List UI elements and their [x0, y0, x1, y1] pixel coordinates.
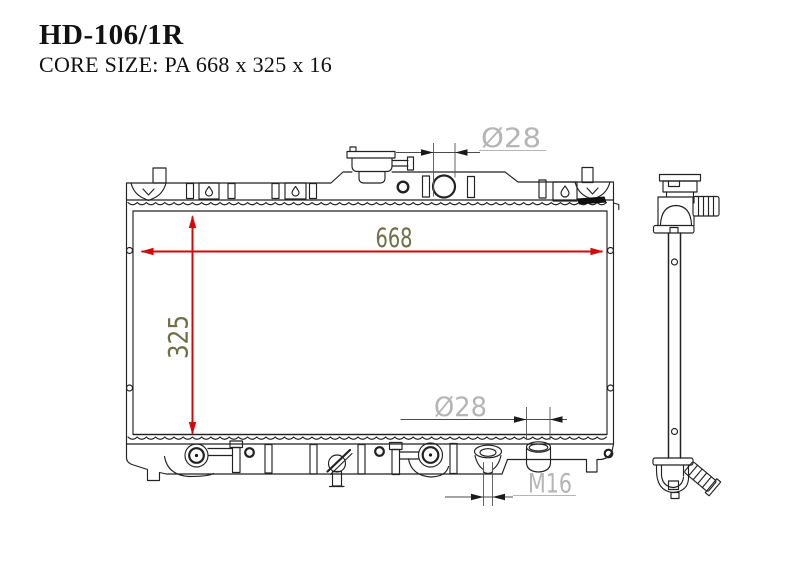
- bracket-plate: [392, 450, 400, 475]
- dimension-core-width: 668: [141, 223, 604, 255]
- left-mount-bracket: [131, 168, 166, 201]
- cap-neck: [667, 192, 694, 197]
- bowl-inner-sides: [662, 465, 684, 476]
- arrowhead-right: [514, 416, 527, 423]
- bolt-hole: [375, 447, 384, 456]
- plate-hole: [127, 248, 133, 254]
- drain-thread-value: M16: [528, 469, 572, 500]
- teardrop-icon: [206, 187, 213, 197]
- bowl-detail: [669, 481, 679, 490]
- tank-rib: [228, 184, 235, 199]
- filler-neck: [359, 172, 385, 184]
- teardrop-square: [199, 183, 219, 199]
- bracket-arc: [575, 182, 610, 200]
- pipe-ribs: [699, 197, 714, 217]
- outlet-pipe: [527, 442, 551, 472]
- dimension-outlet-diameter: Ø28: [401, 392, 568, 440]
- tank-profile: [658, 197, 694, 226]
- overflow-tube-end: [408, 157, 414, 170]
- bowl-inner-bottom: [662, 476, 684, 488]
- teardrop-square: [553, 182, 577, 201]
- tank-rib: [310, 184, 317, 199]
- crimp-wave: [128, 437, 606, 439]
- core-hole: [672, 259, 678, 265]
- label-bar: [577, 197, 607, 205]
- arrowhead-right: [591, 248, 604, 255]
- fitting-center: [429, 453, 432, 456]
- petcock-handle: [328, 450, 351, 472]
- front-view: [127, 147, 619, 487]
- extension-lines: [484, 462, 493, 506]
- funnel-bottom: [484, 472, 493, 474]
- dimension-core-height: 325: [164, 215, 197, 435]
- top-tank-outline-left: [127, 172, 353, 200]
- outlet-diameter-value: Ø28: [434, 392, 487, 423]
- tank-rib: [310, 445, 317, 475]
- inlet-diameter-value: Ø28: [481, 123, 541, 154]
- bracket-v-notch: [587, 188, 598, 194]
- teardrop-square: [285, 183, 306, 199]
- top-flange: [654, 226, 695, 234]
- outlet-rim-inner: [529, 444, 548, 451]
- bracket-arc: [131, 183, 166, 201]
- top-tank: [127, 147, 614, 205]
- tank-dome: [661, 206, 692, 225]
- arrowhead-left: [493, 494, 506, 501]
- tank-rib: [265, 445, 272, 474]
- cap-body: [352, 158, 392, 172]
- funnel-side: [493, 456, 502, 473]
- crimp-wave: [128, 203, 606, 205]
- tank-rib: [272, 184, 279, 199]
- oil-cooler-fitting-middle: [390, 443, 449, 478]
- arrowhead-left: [550, 416, 563, 423]
- oil-cooler-fitting-left: [165, 441, 243, 477]
- funnel-rim-inner: [480, 449, 496, 457]
- bracket-v-notch: [143, 189, 154, 195]
- page: { "header": { "part_number": "HD-106/1R"…: [0, 0, 800, 565]
- tank-rib: [358, 445, 365, 475]
- flange-notch: [670, 228, 678, 234]
- cap-top: [660, 175, 701, 182]
- side-view: [653, 175, 721, 499]
- side-bottom-tank: [653, 458, 721, 499]
- mount-tab: [582, 168, 593, 183]
- radiator-technical-drawing: 668 325 Ø28 Ø28 M16: [0, 0, 800, 565]
- core: [127, 200, 619, 444]
- overflow-boss-circle: [398, 182, 409, 193]
- core-edges: [669, 233, 681, 458]
- cap-top: [347, 152, 395, 159]
- fitting-pipe: [400, 452, 419, 459]
- overflow-tube: [392, 161, 408, 167]
- tank-rib: [423, 176, 430, 197]
- outlet-sides: [527, 448, 551, 464]
- plate-hole: [127, 385, 133, 391]
- right-plate-hook: [614, 203, 619, 210]
- inlet-pipe-circle: [433, 176, 455, 198]
- cap-detail: [669, 181, 680, 187]
- funnel-side: [475, 456, 484, 473]
- dimension-inlet-diameter: Ø28: [396, 123, 546, 197]
- bracket-plate: [233, 448, 241, 473]
- teardrop-icon: [292, 187, 299, 197]
- bottom-flange: [653, 458, 693, 465]
- cap-ear: [350, 147, 356, 152]
- extension-lines: [434, 143, 456, 197]
- side-core: [669, 233, 681, 458]
- tank-rib: [187, 184, 194, 199]
- bottom-tank-outline-left: [127, 444, 167, 481]
- fitting-pipe: [208, 449, 233, 456]
- arrowhead-up: [189, 215, 196, 228]
- core-hole: [672, 429, 678, 435]
- petcock-drain-valve: [328, 450, 353, 487]
- side-inlet-pipe: [693, 197, 719, 217]
- arrowhead-left: [455, 149, 468, 156]
- side-top-tank: [654, 197, 720, 234]
- plate-hole: [608, 385, 614, 391]
- teardrop-icon: [561, 186, 569, 197]
- bolt-hole: [245, 448, 254, 457]
- arrowhead-left: [141, 248, 154, 255]
- drain-fitting-m16: [475, 445, 502, 473]
- right-mount-bracket: [575, 168, 610, 200]
- arrowhead-right: [421, 149, 434, 156]
- plate-hole: [608, 248, 614, 254]
- tank-rib: [539, 180, 546, 198]
- fitting-center: [195, 454, 198, 457]
- dimension-drain-thread: M16: [445, 462, 576, 506]
- core-width-value: 668: [376, 223, 413, 254]
- tank-rib: [468, 177, 475, 198]
- bowl-tab: [671, 493, 679, 499]
- mount-tab: [153, 168, 166, 183]
- core-height-value: 325: [164, 315, 195, 359]
- side-filler-cap: [660, 175, 701, 198]
- arrowhead-right: [471, 494, 484, 501]
- pipe-ribs: [689, 465, 712, 487]
- tank-rib: [450, 444, 457, 474]
- arrowhead-down: [189, 422, 196, 435]
